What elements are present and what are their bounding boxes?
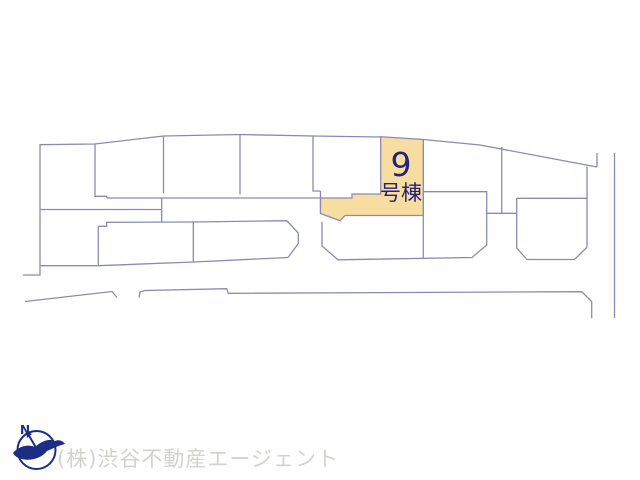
highlight-plot-suffix: 号棟 [380, 181, 422, 205]
plot-outlines [23, 135, 615, 319]
site-plan-map: 9 号棟 N (株)渋谷不動産エージェント [0, 0, 640, 480]
company-watermark: (株)渋谷不動産エージェント [57, 447, 339, 471]
compass-n-label: N [20, 423, 30, 437]
highlight-plot: 9 号棟 [321, 137, 424, 221]
site-plan-page: 9 号棟 N (株)渋谷不動産エージェント [0, 0, 640, 480]
highlight-plot-number: 9 [391, 145, 412, 184]
